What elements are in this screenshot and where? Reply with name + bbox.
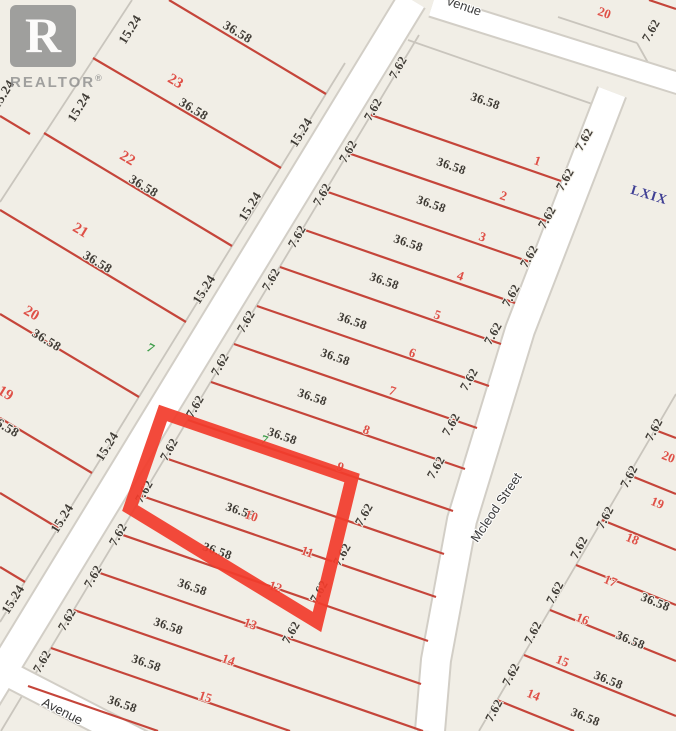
map-canvas[interactable]: 36.5836.5836.5836.5836.5836.5815.2415.24… [0,0,676,731]
plat-map-svg: 36.5836.5836.5836.5836.5836.5815.2415.24… [0,0,676,731]
